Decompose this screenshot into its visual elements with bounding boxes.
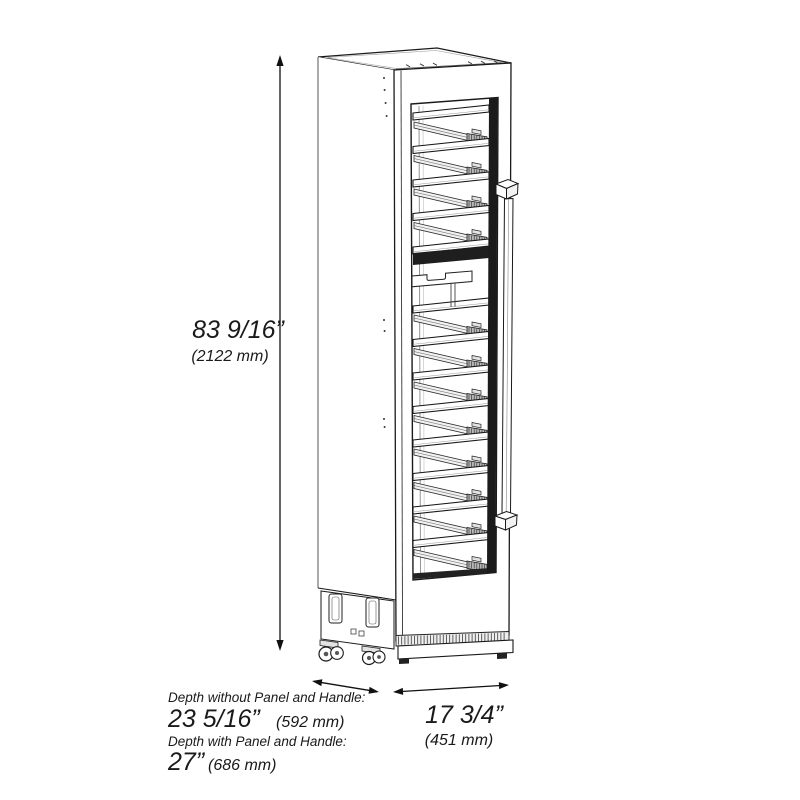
- wine-cooler-cabinet: [318, 48, 518, 665]
- handle-bracket-bottom: [495, 512, 517, 531]
- cabinet-base: [319, 591, 394, 665]
- cabinet-side-panel: [318, 57, 396, 600]
- width-dimension: 17 3/4” (451 mm): [393, 682, 509, 749]
- depth-without-imperial: 23 5/16”: [167, 705, 261, 733]
- front-base: [396, 632, 513, 665]
- height-imperial-label: 83 9/16”: [192, 316, 285, 344]
- foot-left: [399, 658, 409, 664]
- door-glass-window: [411, 98, 498, 581]
- depth-labels: Depth without Panel and Handle: 23 5/16”…: [167, 690, 366, 776]
- foot-right: [497, 653, 507, 659]
- width-imperial-label: 17 3/4”: [425, 701, 505, 729]
- depth-with-imperial: 27”: [167, 748, 206, 776]
- handle-bracket-top: [496, 180, 518, 200]
- cabinet-door: [394, 63, 511, 641]
- diagram-canvas: 83 9/16” (2122 mm) 17 3/4” (451 mm) Dept…: [0, 0, 800, 800]
- height-metric-label: (2122 mm): [191, 348, 268, 365]
- width-metric-label: (451 mm): [425, 732, 493, 749]
- width-dimension-arrow: [395, 685, 507, 692]
- depth-with-metric: (686 mm): [208, 757, 276, 774]
- depth-with-caption: Depth with Panel and Handle:: [168, 734, 347, 749]
- depth-without-metric: (592 mm): [276, 714, 344, 731]
- height-dimension: 83 9/16” (2122 mm): [191, 55, 285, 651]
- wine-cooler-dimension-drawing: 83 9/16” (2122 mm) 17 3/4” (451 mm) Dept…: [0, 0, 800, 800]
- depth-without-caption: Depth without Panel and Handle:: [168, 690, 366, 705]
